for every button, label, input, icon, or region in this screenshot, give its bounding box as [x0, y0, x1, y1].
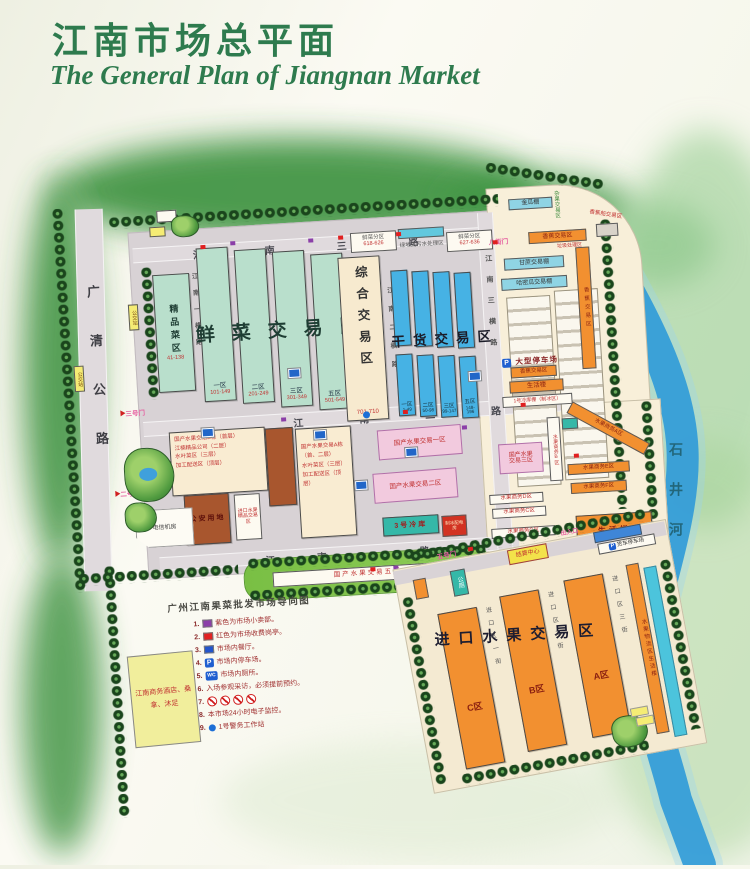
legend-num: 4. — [196, 659, 202, 666]
import-building-c-label: C区 — [455, 697, 495, 717]
parking-icon: P — [204, 658, 214, 668]
marker-dot — [338, 235, 343, 239]
domestic-fruit-zone-3: 国产水果 交易三区 — [498, 442, 544, 475]
legend-item-2: 2.红色为市场收费岗亭。 — [194, 627, 286, 643]
legend-text: 市场内厕所。 — [220, 667, 263, 680]
wc-icon — [405, 447, 418, 457]
page-subtitle: The General Plan of Jiangnan Market — [50, 60, 480, 91]
fresh-sub-zone-2: 鲜菜分区 627-636 — [446, 229, 493, 252]
legend-item-5: 5.WC市场内厕所。 — [196, 667, 262, 681]
marker-dot — [493, 240, 498, 244]
marker-dot — [230, 241, 235, 245]
legend-text: 市场内餐厅。 — [217, 641, 260, 654]
dry-building-2-range: 50-98 — [423, 409, 435, 414]
legend-item-9: 9.1号警务工作站 — [200, 719, 265, 733]
fresh-building-1-range: 101-149 — [210, 390, 231, 397]
legend-item-3: 3.市场内餐厅。 — [195, 641, 259, 655]
page-title: 江南市场总平面 — [52, 12, 339, 64]
fresh-building-5-range: 501-549 — [325, 398, 346, 405]
prohibition-icon — [233, 694, 244, 705]
legend-text: 入场参观采访，必须提前预约。 — [206, 678, 304, 694]
marker-dot — [281, 417, 286, 421]
legend-text: 市场内停车场。 — [216, 654, 266, 667]
legend-text: 红色为市场收费岗亭。 — [216, 627, 286, 641]
garbage-area — [596, 223, 619, 237]
marker-dot — [370, 567, 375, 571]
wc-icon — [355, 480, 368, 490]
purple-swatch-icon — [202, 619, 212, 628]
premium-veg-label: 精品菜区 — [168, 304, 181, 356]
police-station-icon — [208, 724, 215, 731]
gate-3-label: 三号门 — [125, 410, 145, 418]
building-a-line3: 加工配送区（顶层） — [302, 469, 349, 490]
blue-swatch-icon — [204, 645, 214, 654]
legend-text: 紫色为市场小卖部。 — [215, 614, 278, 628]
wc-icon — [314, 430, 327, 440]
comprehensive-zone-label: 综合交易区 — [352, 265, 372, 373]
import-premium-zone: 进口水果精品交易区 — [234, 493, 263, 541]
toilet-icon: WC — [205, 670, 218, 680]
fresh-sub-zone-1: 鲜菜分区 618-626 — [350, 230, 397, 253]
small-structure — [562, 418, 579, 430]
legend-item-7: 7. — [198, 694, 259, 708]
bus-stop: 公交站 — [73, 366, 85, 393]
parking-icon: P — [609, 543, 617, 551]
red-swatch-icon — [203, 632, 213, 641]
domestic-building-b: 国产水果交易B栋（首层） 江楠精品公司（二层） 水叶菜区（三层） 加工配送区（顶… — [169, 427, 269, 497]
legend-num: 5. — [196, 672, 202, 679]
cold-storage-3: 3号冷库 — [382, 514, 439, 536]
legend-num: 2. — [194, 633, 200, 640]
marker-dot — [521, 403, 526, 407]
wc-icon — [202, 428, 215, 438]
marker-dot — [462, 425, 467, 429]
marker-dot — [200, 245, 205, 249]
dry-building-5-range: 148-196 — [463, 405, 479, 415]
gate-8-label: 八街门 — [488, 235, 508, 246]
wc-icon — [288, 368, 301, 378]
legend-num: 8. — [199, 711, 205, 718]
premium-veg-zone: 精品菜区 41-138 — [152, 273, 196, 393]
bus-stop: 公交站 — [128, 304, 140, 331]
legend-item-4: 4.P市场内停车场。 — [196, 654, 266, 668]
premium-veg-range: 41-138 — [167, 356, 184, 363]
truck-parking-label: 货车停车场 — [617, 538, 645, 549]
site-plan: 广清公路 江南三路 江南二路 江南一路 江南一横路 D区一街 D区二街 D区三街… — [35, 129, 746, 869]
hotel-box: 江南商务酒店、桑拿、沐足 — [127, 650, 202, 748]
legend-num: 9. — [200, 724, 206, 731]
prohibition-icon — [220, 695, 231, 706]
legend-text: 1号警务工作站 — [218, 719, 264, 732]
prohibition-icon — [246, 694, 257, 705]
legend-num: 3. — [195, 646, 201, 653]
poster: 江南市场总平面 The General Plan of Jiangnan Mar… — [0, 0, 750, 865]
import-fruit-zone: 五号门 结算中心 出入口 P 货车停车场 公厕 C区 B区 A区 进口水果交易区… — [391, 509, 711, 802]
legend-num: 1. — [193, 621, 199, 628]
domestic-3-line2: 交易三区 — [509, 457, 533, 465]
fresh-sub-zone-2-range: 627-636 — [459, 240, 480, 247]
legend-text: 本市场24小时电子监控。 — [208, 705, 286, 720]
marker-dot — [396, 232, 401, 236]
gate-3: 三号门 — [120, 402, 146, 421]
wc-icon — [469, 371, 482, 381]
dry-building-3-range: 99-147 — [442, 409, 456, 415]
marker-dot — [574, 454, 579, 458]
import-building-a-label: A区 — [581, 665, 621, 685]
legend-item-8: 8.本市场24小时电子监控。 — [199, 705, 286, 720]
domestic-building-a: 国产水果交易A栋（首、二层） 水叶菜区（三层） 加工配送区（顶层） — [295, 425, 358, 538]
legend-title: 广州江南果菜批发市场导向图 — [167, 592, 311, 615]
marker-dot — [403, 410, 408, 414]
tree-row — [104, 566, 131, 818]
prohibition-icon — [207, 696, 218, 707]
fresh-sub-zone-1-range: 618-626 — [363, 241, 384, 248]
legend-num: 7. — [198, 698, 204, 705]
marker-dot — [308, 238, 313, 242]
import-building-b-label: B区 — [517, 679, 557, 699]
legend-num: 6. — [197, 685, 203, 692]
fresh-building-2-range: 201-249 — [248, 392, 269, 399]
ice-power-room: 制冰配电房 — [441, 514, 467, 536]
connector-building — [265, 427, 298, 507]
small-structure — [149, 226, 166, 237]
pond — [139, 467, 158, 481]
fresh-building-3-range: 301-349 — [287, 395, 308, 402]
